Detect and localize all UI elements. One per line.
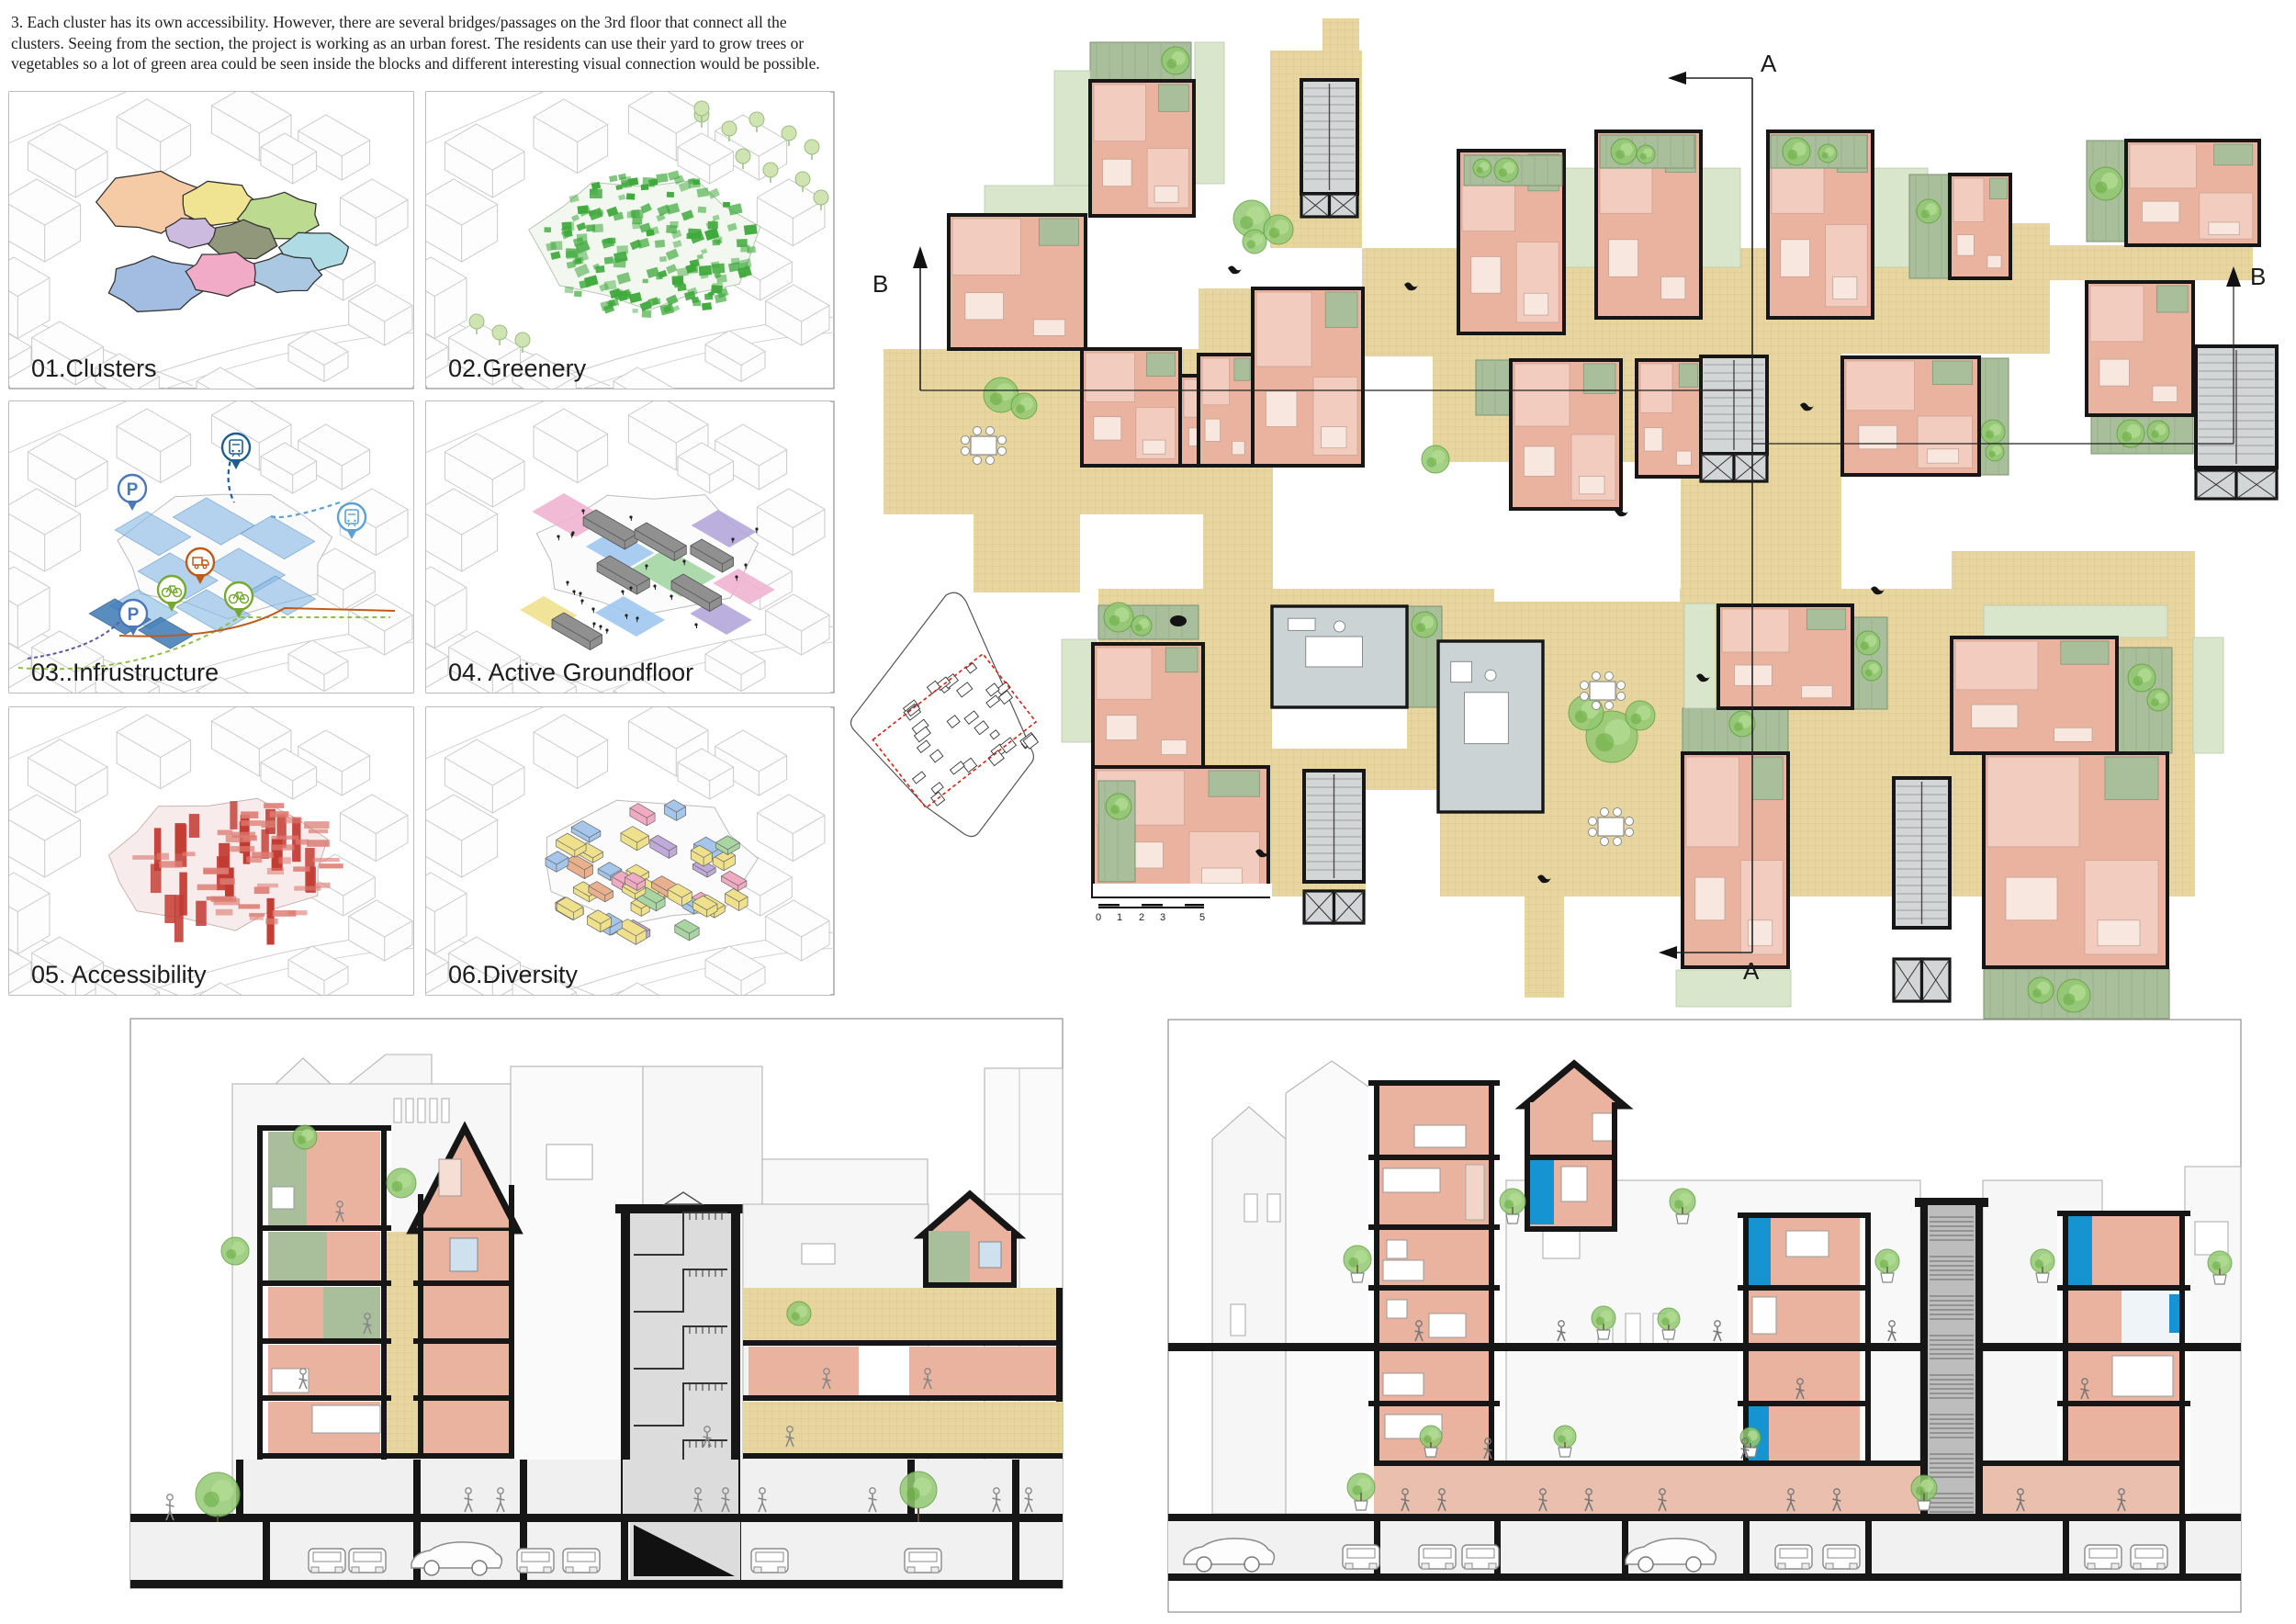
svg-text:A: A xyxy=(1743,957,1760,985)
svg-text:02.Greenery: 02.Greenery xyxy=(448,355,587,382)
svg-text:B: B xyxy=(2250,263,2266,290)
svg-text:0: 0 xyxy=(1096,912,1101,923)
svg-text:04. Active Groundfloor: 04. Active Groundfloor xyxy=(448,659,693,686)
svg-text:06.Diversity: 06.Diversity xyxy=(448,961,579,988)
svg-text:05. Accessibility: 05. Accessibility xyxy=(31,961,207,988)
svg-text:A: A xyxy=(1761,50,1777,77)
svg-text:5: 5 xyxy=(1199,912,1205,923)
svg-text:3: 3 xyxy=(1160,912,1165,923)
svg-text:1: 1 xyxy=(1117,912,1122,923)
svg-text:P: P xyxy=(128,605,140,625)
svg-text:01.Clusters: 01.Clusters xyxy=(31,355,157,382)
svg-text:B: B xyxy=(872,270,888,298)
svg-text:2: 2 xyxy=(1139,912,1144,923)
svg-text:P: P xyxy=(127,480,139,500)
svg-text:03..Infrustructure: 03..Infrustructure xyxy=(31,659,219,686)
